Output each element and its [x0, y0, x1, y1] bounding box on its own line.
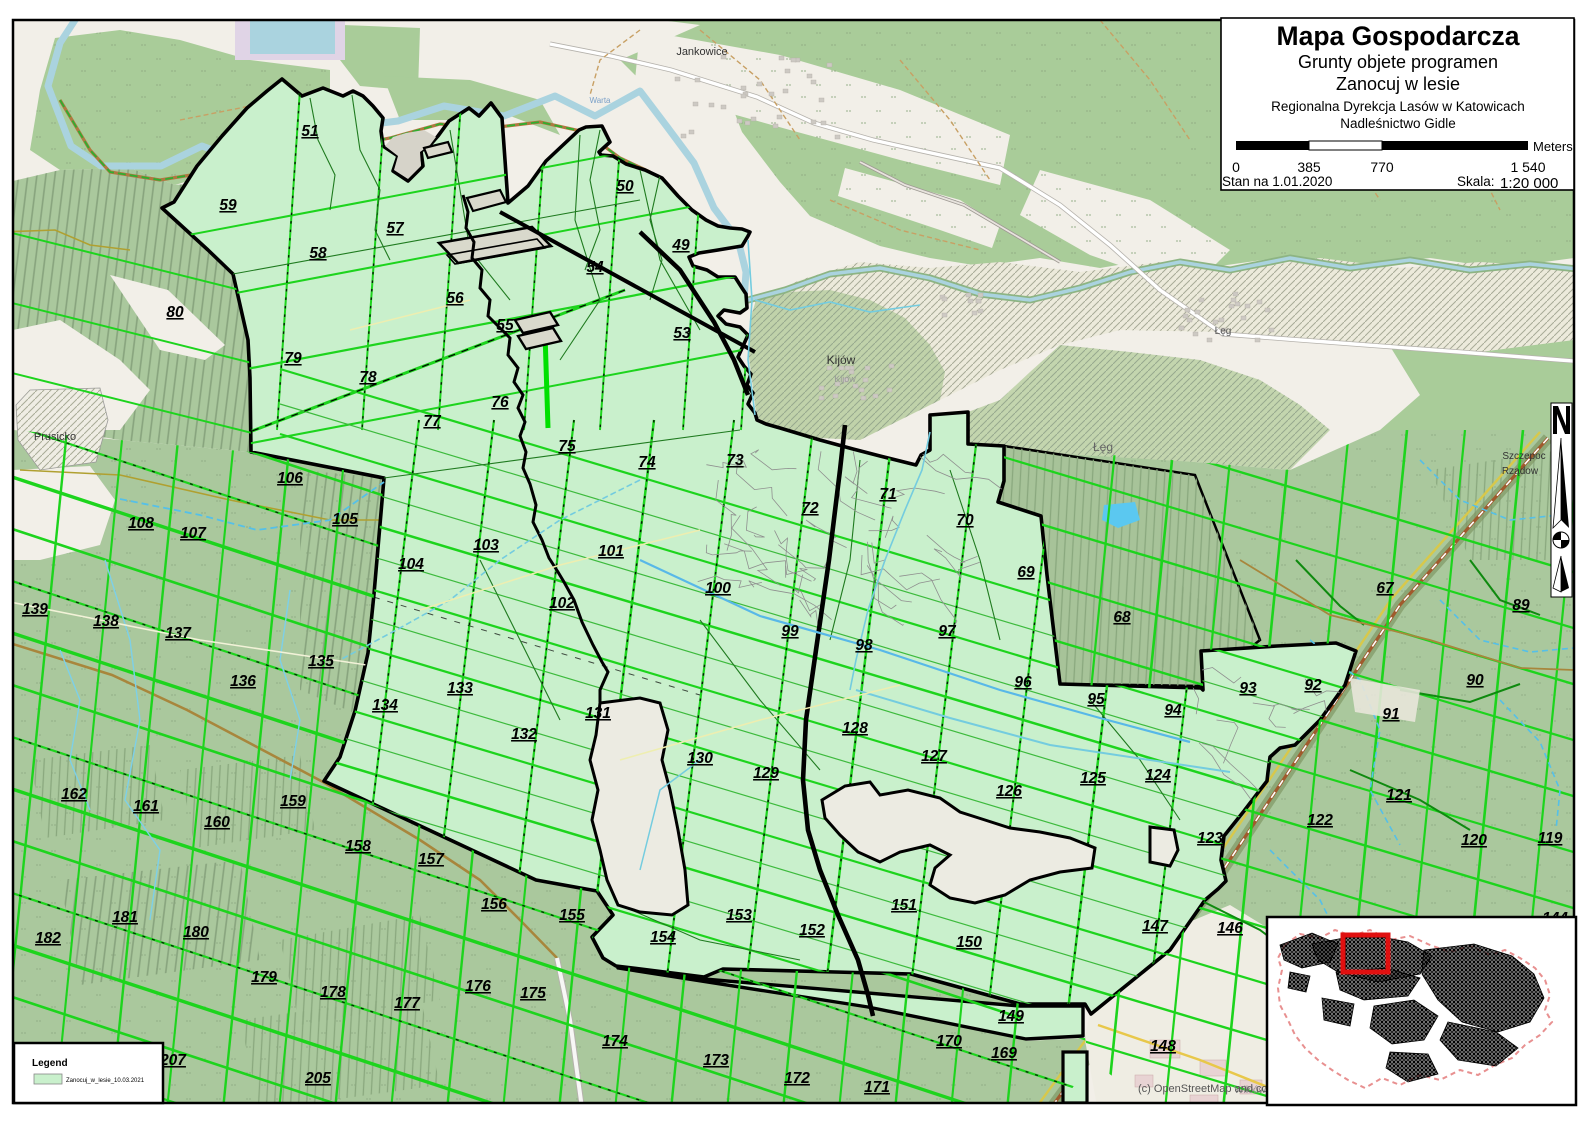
svg-text:Rządow: Rządow	[1502, 466, 1539, 477]
svg-text:Zanocuj_w_lesie_10.03.2021: Zanocuj_w_lesie_10.03.2021	[66, 1078, 145, 1084]
svg-text:53: 53	[673, 325, 691, 342]
svg-text:78: 78	[359, 369, 377, 386]
svg-text:72: 72	[801, 500, 819, 517]
svg-text:181: 181	[112, 909, 138, 926]
svg-text:103: 103	[473, 537, 499, 554]
svg-text:Prusicko: Prusicko	[34, 431, 76, 443]
svg-text:152: 152	[799, 922, 825, 939]
svg-text:56: 56	[446, 290, 464, 307]
svg-text:73: 73	[726, 452, 744, 469]
svg-text:770: 770	[1370, 159, 1394, 175]
svg-text:160: 160	[204, 814, 230, 831]
svg-text:55: 55	[496, 317, 514, 334]
svg-text:Nadleśnictwo Gidle: Nadleśnictwo Gidle	[1340, 116, 1456, 131]
svg-text:77: 77	[423, 413, 442, 430]
svg-text:170: 170	[936, 1033, 962, 1050]
svg-text:146: 146	[1217, 920, 1243, 937]
svg-text:137: 137	[165, 625, 192, 642]
svg-text:133: 133	[447, 680, 473, 697]
svg-text:98: 98	[855, 637, 873, 654]
svg-text:126: 126	[996, 783, 1022, 800]
svg-text:134: 134	[372, 697, 398, 714]
svg-text:Szczepoc: Szczepoc	[1502, 451, 1545, 462]
svg-text:385: 385	[1297, 159, 1321, 175]
svg-text:136: 136	[230, 673, 256, 690]
svg-text:96: 96	[1014, 674, 1032, 691]
svg-text:74: 74	[638, 454, 656, 471]
svg-text:159: 159	[280, 793, 306, 810]
svg-text:Skala:: Skala:	[1457, 174, 1495, 189]
svg-text:148: 148	[1150, 1038, 1176, 1055]
svg-text:128: 128	[842, 720, 868, 737]
svg-text:67: 67	[1376, 580, 1395, 597]
svg-text:155: 155	[559, 907, 585, 924]
svg-text:182: 182	[35, 930, 61, 947]
svg-text:Zanocuj w lesie: Zanocuj w lesie	[1336, 74, 1460, 94]
svg-text:(c) OpenStreetMap and co: (c) OpenStreetMap and co	[1138, 1083, 1268, 1095]
svg-text:Regionalna Dyrekcja Lasów w Ka: Regionalna Dyrekcja Lasów w Katowicach	[1271, 99, 1525, 114]
svg-text:176: 176	[465, 978, 491, 995]
svg-text:124: 124	[1145, 767, 1171, 784]
svg-text:122: 122	[1307, 812, 1333, 829]
svg-text:54: 54	[586, 259, 604, 276]
svg-text:Meters: Meters	[1533, 139, 1573, 154]
svg-text:Warta: Warta	[589, 96, 611, 105]
svg-text:1 540: 1 540	[1510, 159, 1545, 175]
svg-text:162: 162	[61, 786, 87, 803]
svg-text:57: 57	[386, 220, 405, 237]
svg-text:174: 174	[602, 1033, 628, 1050]
svg-text:100: 100	[705, 580, 731, 597]
svg-text:0: 0	[1232, 159, 1240, 175]
svg-text:175: 175	[520, 985, 546, 1002]
svg-text:80: 80	[166, 304, 184, 321]
svg-text:101: 101	[598, 543, 624, 560]
svg-text:125: 125	[1080, 770, 1106, 787]
svg-text:179: 179	[251, 969, 277, 986]
svg-text:154: 154	[650, 929, 676, 946]
svg-text:161: 161	[133, 798, 159, 815]
svg-text:Kijów: Kijów	[834, 374, 856, 384]
svg-text:106: 106	[277, 470, 303, 487]
svg-text:150: 150	[956, 934, 982, 951]
svg-text:138: 138	[93, 613, 119, 630]
svg-text:69: 69	[1017, 564, 1035, 581]
svg-text:127: 127	[921, 748, 948, 765]
svg-text:147: 147	[1142, 918, 1169, 935]
svg-text:50: 50	[616, 178, 634, 195]
svg-text:99: 99	[781, 623, 799, 640]
svg-text:Łęg: Łęg	[1215, 326, 1232, 337]
svg-text:Jankowice: Jankowice	[676, 46, 727, 58]
svg-text:Grunty objete programen: Grunty objete programen	[1298, 52, 1498, 72]
svg-text:92: 92	[1304, 677, 1322, 694]
svg-text:173: 173	[703, 1052, 729, 1069]
svg-text:132: 132	[511, 726, 537, 743]
svg-text:68: 68	[1113, 609, 1131, 626]
svg-text:119: 119	[1538, 830, 1563, 847]
svg-text:121: 121	[1386, 787, 1412, 804]
svg-text:171: 171	[864, 1079, 890, 1096]
svg-text:180: 180	[183, 924, 209, 941]
svg-text:131: 131	[585, 705, 611, 722]
svg-text:59: 59	[219, 197, 237, 214]
svg-text:76: 76	[491, 394, 509, 411]
svg-text:Kijów: Kijów	[827, 353, 856, 367]
svg-text:90: 90	[1466, 672, 1484, 689]
svg-text:71: 71	[879, 486, 896, 503]
svg-text:104: 104	[398, 556, 424, 573]
svg-text:94: 94	[1164, 702, 1182, 719]
svg-text:79: 79	[284, 350, 302, 367]
svg-text:97: 97	[938, 623, 957, 640]
svg-text:91: 91	[1382, 706, 1399, 723]
svg-text:Łęg: Łęg	[1093, 440, 1113, 454]
svg-text:105: 105	[332, 511, 358, 528]
svg-text:178: 178	[320, 984, 346, 1001]
svg-text:120: 120	[1461, 832, 1487, 849]
svg-text:75: 75	[558, 438, 576, 455]
svg-text:Stan na 1.01.2020: Stan na 1.01.2020	[1222, 174, 1332, 189]
svg-text:95: 95	[1087, 691, 1105, 708]
svg-text:1:20 000: 1:20 000	[1500, 175, 1558, 192]
svg-text:130: 130	[687, 750, 713, 767]
svg-text:158: 158	[345, 838, 371, 855]
svg-text:89: 89	[1512, 597, 1530, 614]
svg-text:177: 177	[394, 995, 421, 1012]
svg-text:49: 49	[671, 237, 690, 254]
svg-text:135: 135	[308, 653, 334, 670]
svg-text:169: 169	[991, 1045, 1017, 1062]
svg-text:58: 58	[309, 245, 327, 262]
svg-text:156: 156	[481, 896, 507, 913]
svg-text:108: 108	[128, 515, 154, 532]
svg-text:129: 129	[753, 765, 779, 782]
svg-text:151: 151	[891, 897, 917, 914]
svg-text:139: 139	[22, 601, 48, 618]
svg-text:172: 172	[784, 1070, 810, 1087]
svg-text:149: 149	[998, 1008, 1024, 1025]
svg-text:107: 107	[180, 525, 207, 542]
svg-text:157: 157	[418, 851, 445, 868]
svg-text:123: 123	[1197, 830, 1223, 847]
svg-text:205: 205	[304, 1070, 331, 1087]
svg-text:Legend: Legend	[32, 1058, 68, 1069]
svg-text:Mapa Gospodarcza: Mapa Gospodarcza	[1277, 21, 1520, 51]
svg-text:51: 51	[301, 123, 318, 140]
svg-text:70: 70	[956, 512, 974, 529]
svg-text:93: 93	[1239, 680, 1257, 697]
svg-text:153: 153	[726, 907, 752, 924]
svg-text:102: 102	[549, 595, 575, 612]
